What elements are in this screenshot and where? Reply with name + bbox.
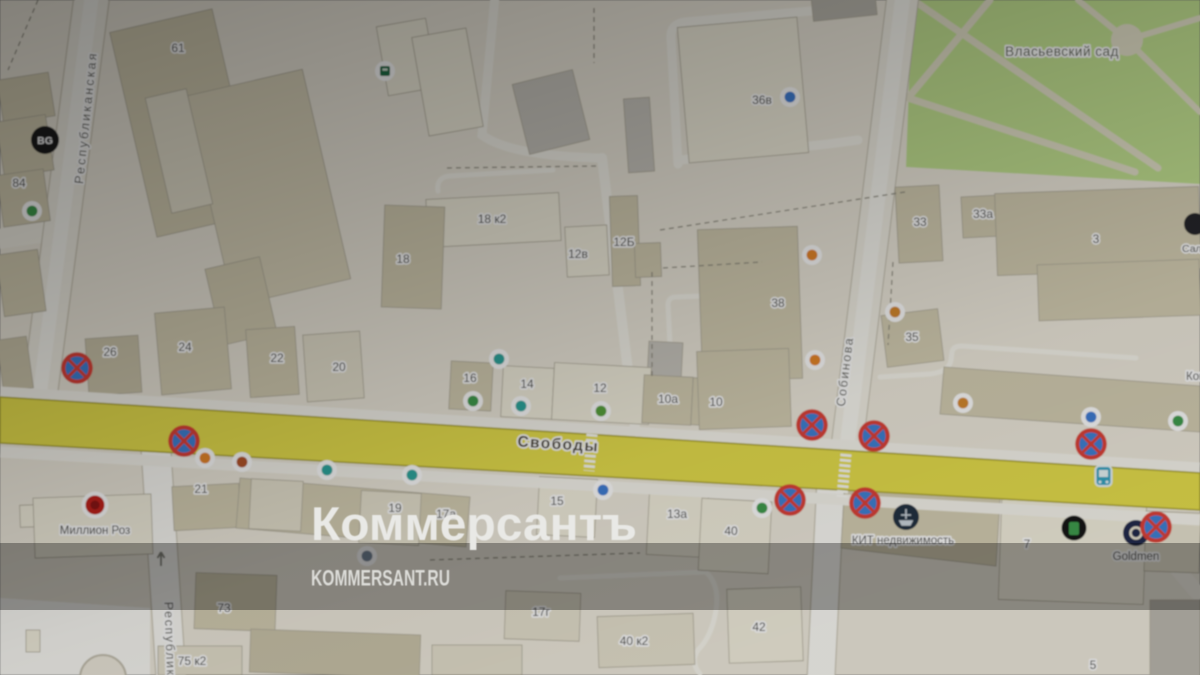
svg-text:Коммерсантъ: Коммерсантъ (311, 497, 637, 550)
svg-text:KOMMERSANT.RU: KOMMERSANT.RU (311, 566, 450, 591)
